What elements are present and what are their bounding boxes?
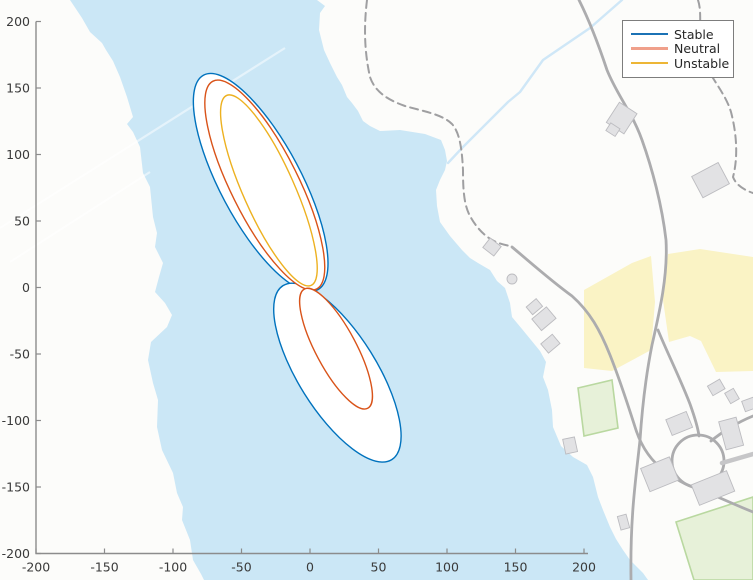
x-tick-label: -50 [231,560,251,575]
x-tick-label: 50 [371,560,387,575]
building [617,514,629,530]
x-tick-label: -150 [90,560,118,575]
road-driveway [722,454,753,463]
stream-line [448,0,622,163]
neutral-line-swatch [631,47,668,50]
y-tick-label: 200 [6,14,30,29]
x-tick-label: -200 [22,560,50,575]
legend-item-unstable: Unstable [631,56,725,71]
legend-item-stable: Stable [631,27,725,42]
map-layer [0,0,753,580]
field-green [676,497,753,580]
legend-item-neutral: Neutral [631,42,725,57]
map-plot-svg: -200-150-100-50050100150200-200-150-100-… [0,0,753,580]
building [563,437,578,454]
x-tick-label: 150 [504,560,528,575]
faint-line-on-water [10,172,150,262]
x-tick-label: 100 [435,560,459,575]
y-tick-label: -100 [2,413,30,428]
building [483,238,501,256]
x-tick-label: 200 [572,560,596,575]
y-tick-label: 50 [14,214,30,229]
stable-line-swatch [631,33,668,35]
y-tick-label: -50 [10,347,30,362]
building [707,379,725,396]
y-tick-label: 150 [6,81,30,96]
building [541,334,560,353]
lake-water [70,0,648,580]
legend-label: Unstable [674,56,729,71]
legend-label: Neutral [674,41,720,56]
building [507,274,517,284]
building [692,162,730,197]
field-green [578,380,618,436]
unstable-line-swatch [631,62,668,64]
farmland-yellow [584,256,655,371]
building [666,411,693,435]
building [725,388,740,403]
legend-label: Stable [674,27,714,42]
y-tick-label: -150 [2,480,30,495]
x-tick-label: 0 [306,560,314,575]
legend-box: Stable Neutral Unstable [622,20,734,78]
x-tick-label: -100 [159,560,187,575]
y-tick-label: -200 [2,546,30,561]
y-tick-label: 0 [22,280,30,295]
figure-canvas: -200-150-100-50050100150200-200-150-100-… [0,0,753,580]
building [742,397,753,412]
y-tick-label: 100 [6,147,30,162]
farmland-yellow [663,249,753,372]
